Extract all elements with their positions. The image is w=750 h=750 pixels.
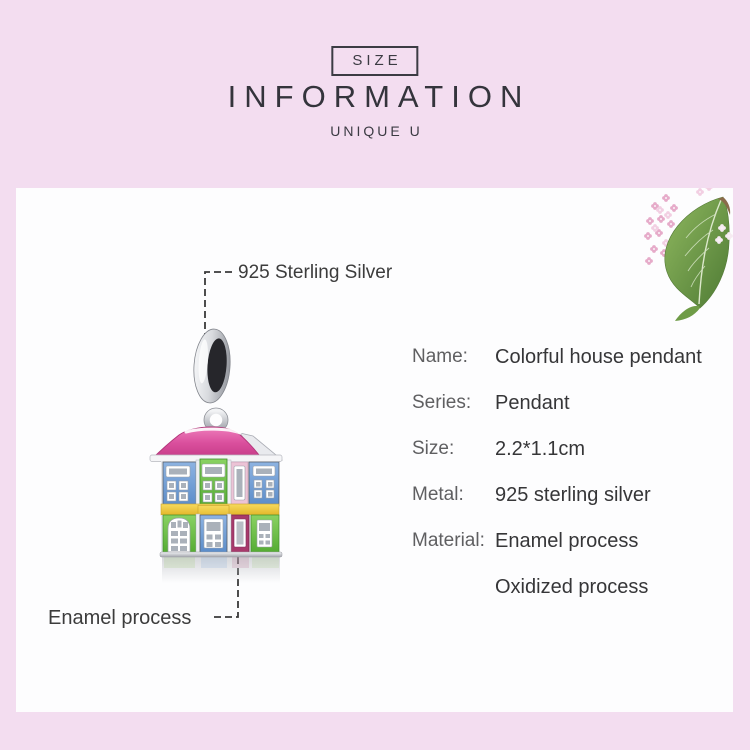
spec-list: Name: Colorful house pendant Series: Pen…	[412, 345, 734, 621]
spec-label: Series:	[412, 391, 495, 415]
spec-label: Metal:	[412, 483, 495, 507]
spec-value: 925 sterling silver	[495, 483, 651, 507]
spec-row-material: Material: Enamel process	[412, 529, 734, 555]
spec-row-size: Size: 2.2*1.1cm	[412, 437, 734, 463]
size-badge: SIZE	[331, 46, 418, 76]
spec-value: 2.2*1.1cm	[495, 437, 585, 461]
enamel-callout-label: Enamel process	[48, 607, 191, 630]
spec-label: Size:	[412, 437, 495, 461]
spec-value: Oxidized process	[495, 575, 648, 599]
spec-label: Name:	[412, 345, 495, 369]
silver-callout-label: 925 Sterling Silver	[238, 262, 392, 284]
spec-row-metal: Metal: 925 sterling silver	[412, 483, 734, 509]
product-info-page: SIZE INFORMATION UNIQUE U	[0, 0, 750, 750]
page-subtitle: UNIQUE U	[0, 122, 750, 140]
spec-row-material-2: Oxidized process	[412, 575, 734, 601]
spec-value: Pendant	[495, 391, 570, 415]
spec-row-name: Name: Colorful house pendant	[412, 345, 734, 371]
page-title: INFORMATION	[0, 80, 750, 114]
spec-value: Enamel process	[495, 529, 638, 553]
spec-value: Colorful house pendant	[495, 345, 702, 369]
spec-row-series: Series: Pendant	[412, 391, 734, 417]
spec-label: Material:	[412, 529, 495, 553]
